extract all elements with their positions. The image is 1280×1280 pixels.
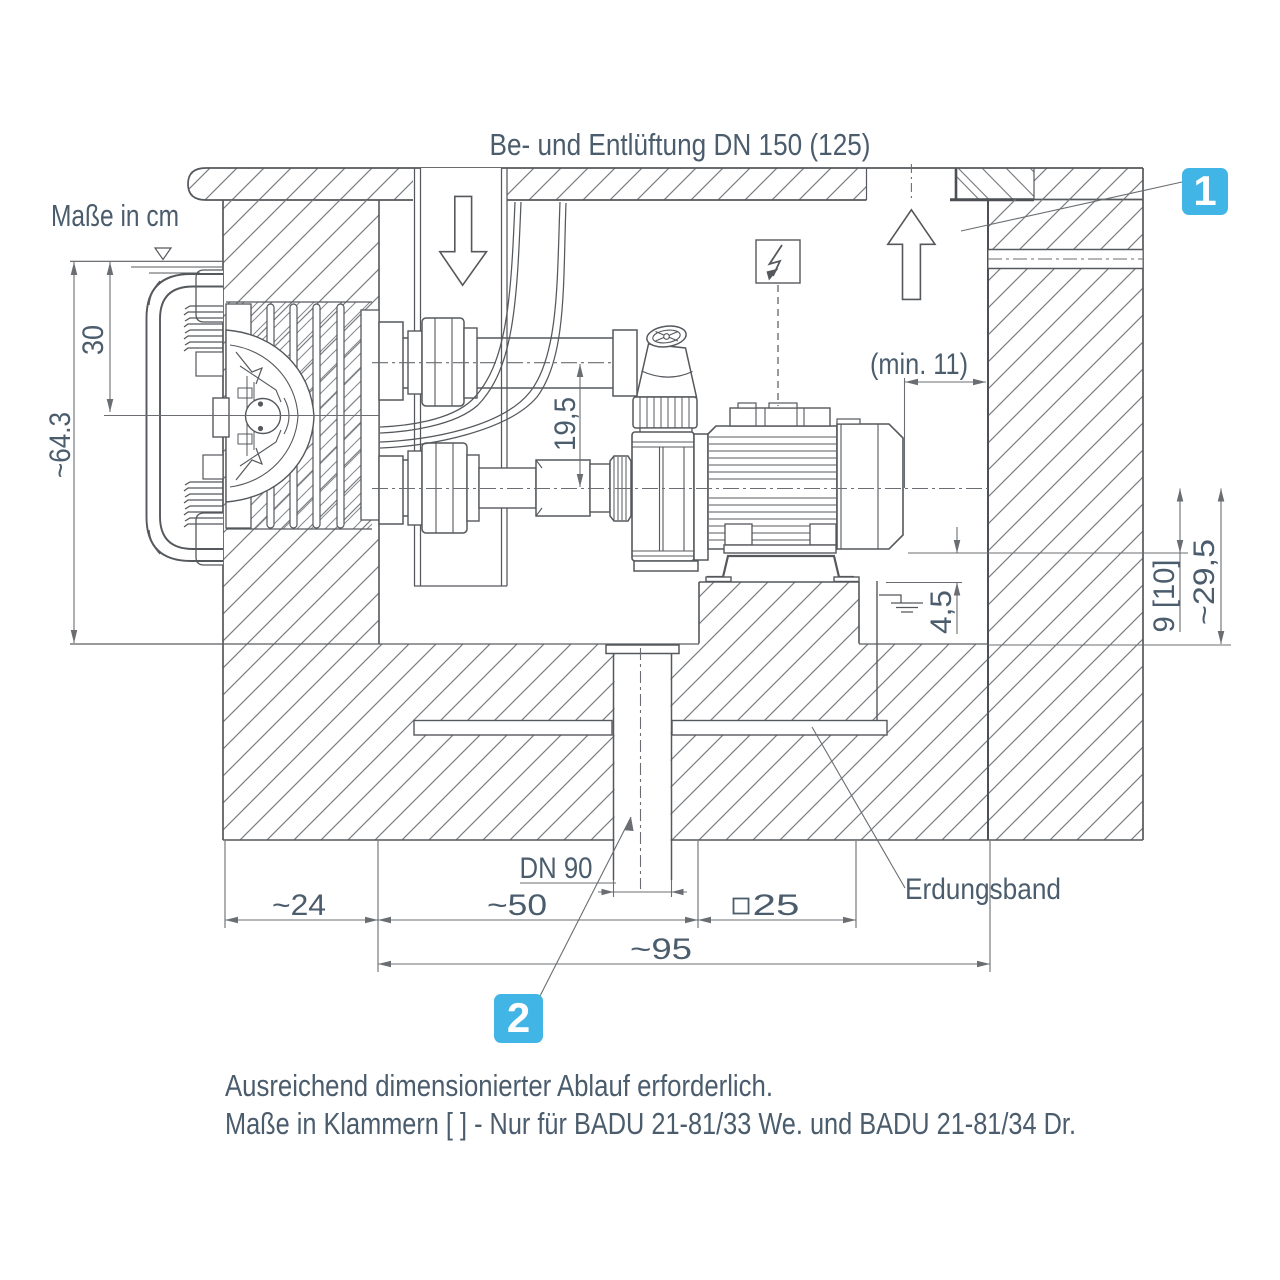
svg-text:Erdungsband: Erdungsband (905, 873, 1061, 906)
svg-text:25: 25 (753, 889, 800, 922)
svg-text:30: 30 (77, 325, 110, 355)
svg-text:(min. 11): (min. 11) (870, 348, 968, 381)
svg-text:Maße in cm: Maße in cm (51, 198, 179, 233)
svg-text:~50: ~50 (487, 889, 547, 922)
svg-text:~24: ~24 (272, 889, 326, 922)
svg-text:DN 90: DN 90 (520, 852, 593, 885)
svg-text:2: 2 (507, 994, 530, 1041)
svg-text:~29,5: ~29,5 (1188, 539, 1221, 625)
svg-text:9 [10]: 9 [10] (1148, 560, 1181, 633)
svg-text:4,5: 4,5 (925, 590, 958, 634)
svg-text:~64.3: ~64.3 (44, 412, 77, 478)
svg-text:Ausreichend dimensionierter Ab: Ausreichend dimensionierter Ablauf erfor… (225, 1068, 773, 1103)
svg-text:19,5: 19,5 (549, 397, 582, 451)
svg-text:~95: ~95 (630, 933, 692, 966)
svg-text:Maße in Klammern [ ] - Nur für: Maße in Klammern [ ] - Nur für BADU 21-8… (225, 1106, 1076, 1141)
svg-text:1: 1 (1193, 167, 1216, 214)
svg-text:Be- und Entlüftung DN 150 (125: Be- und Entlüftung DN 150 (125) (490, 127, 871, 162)
